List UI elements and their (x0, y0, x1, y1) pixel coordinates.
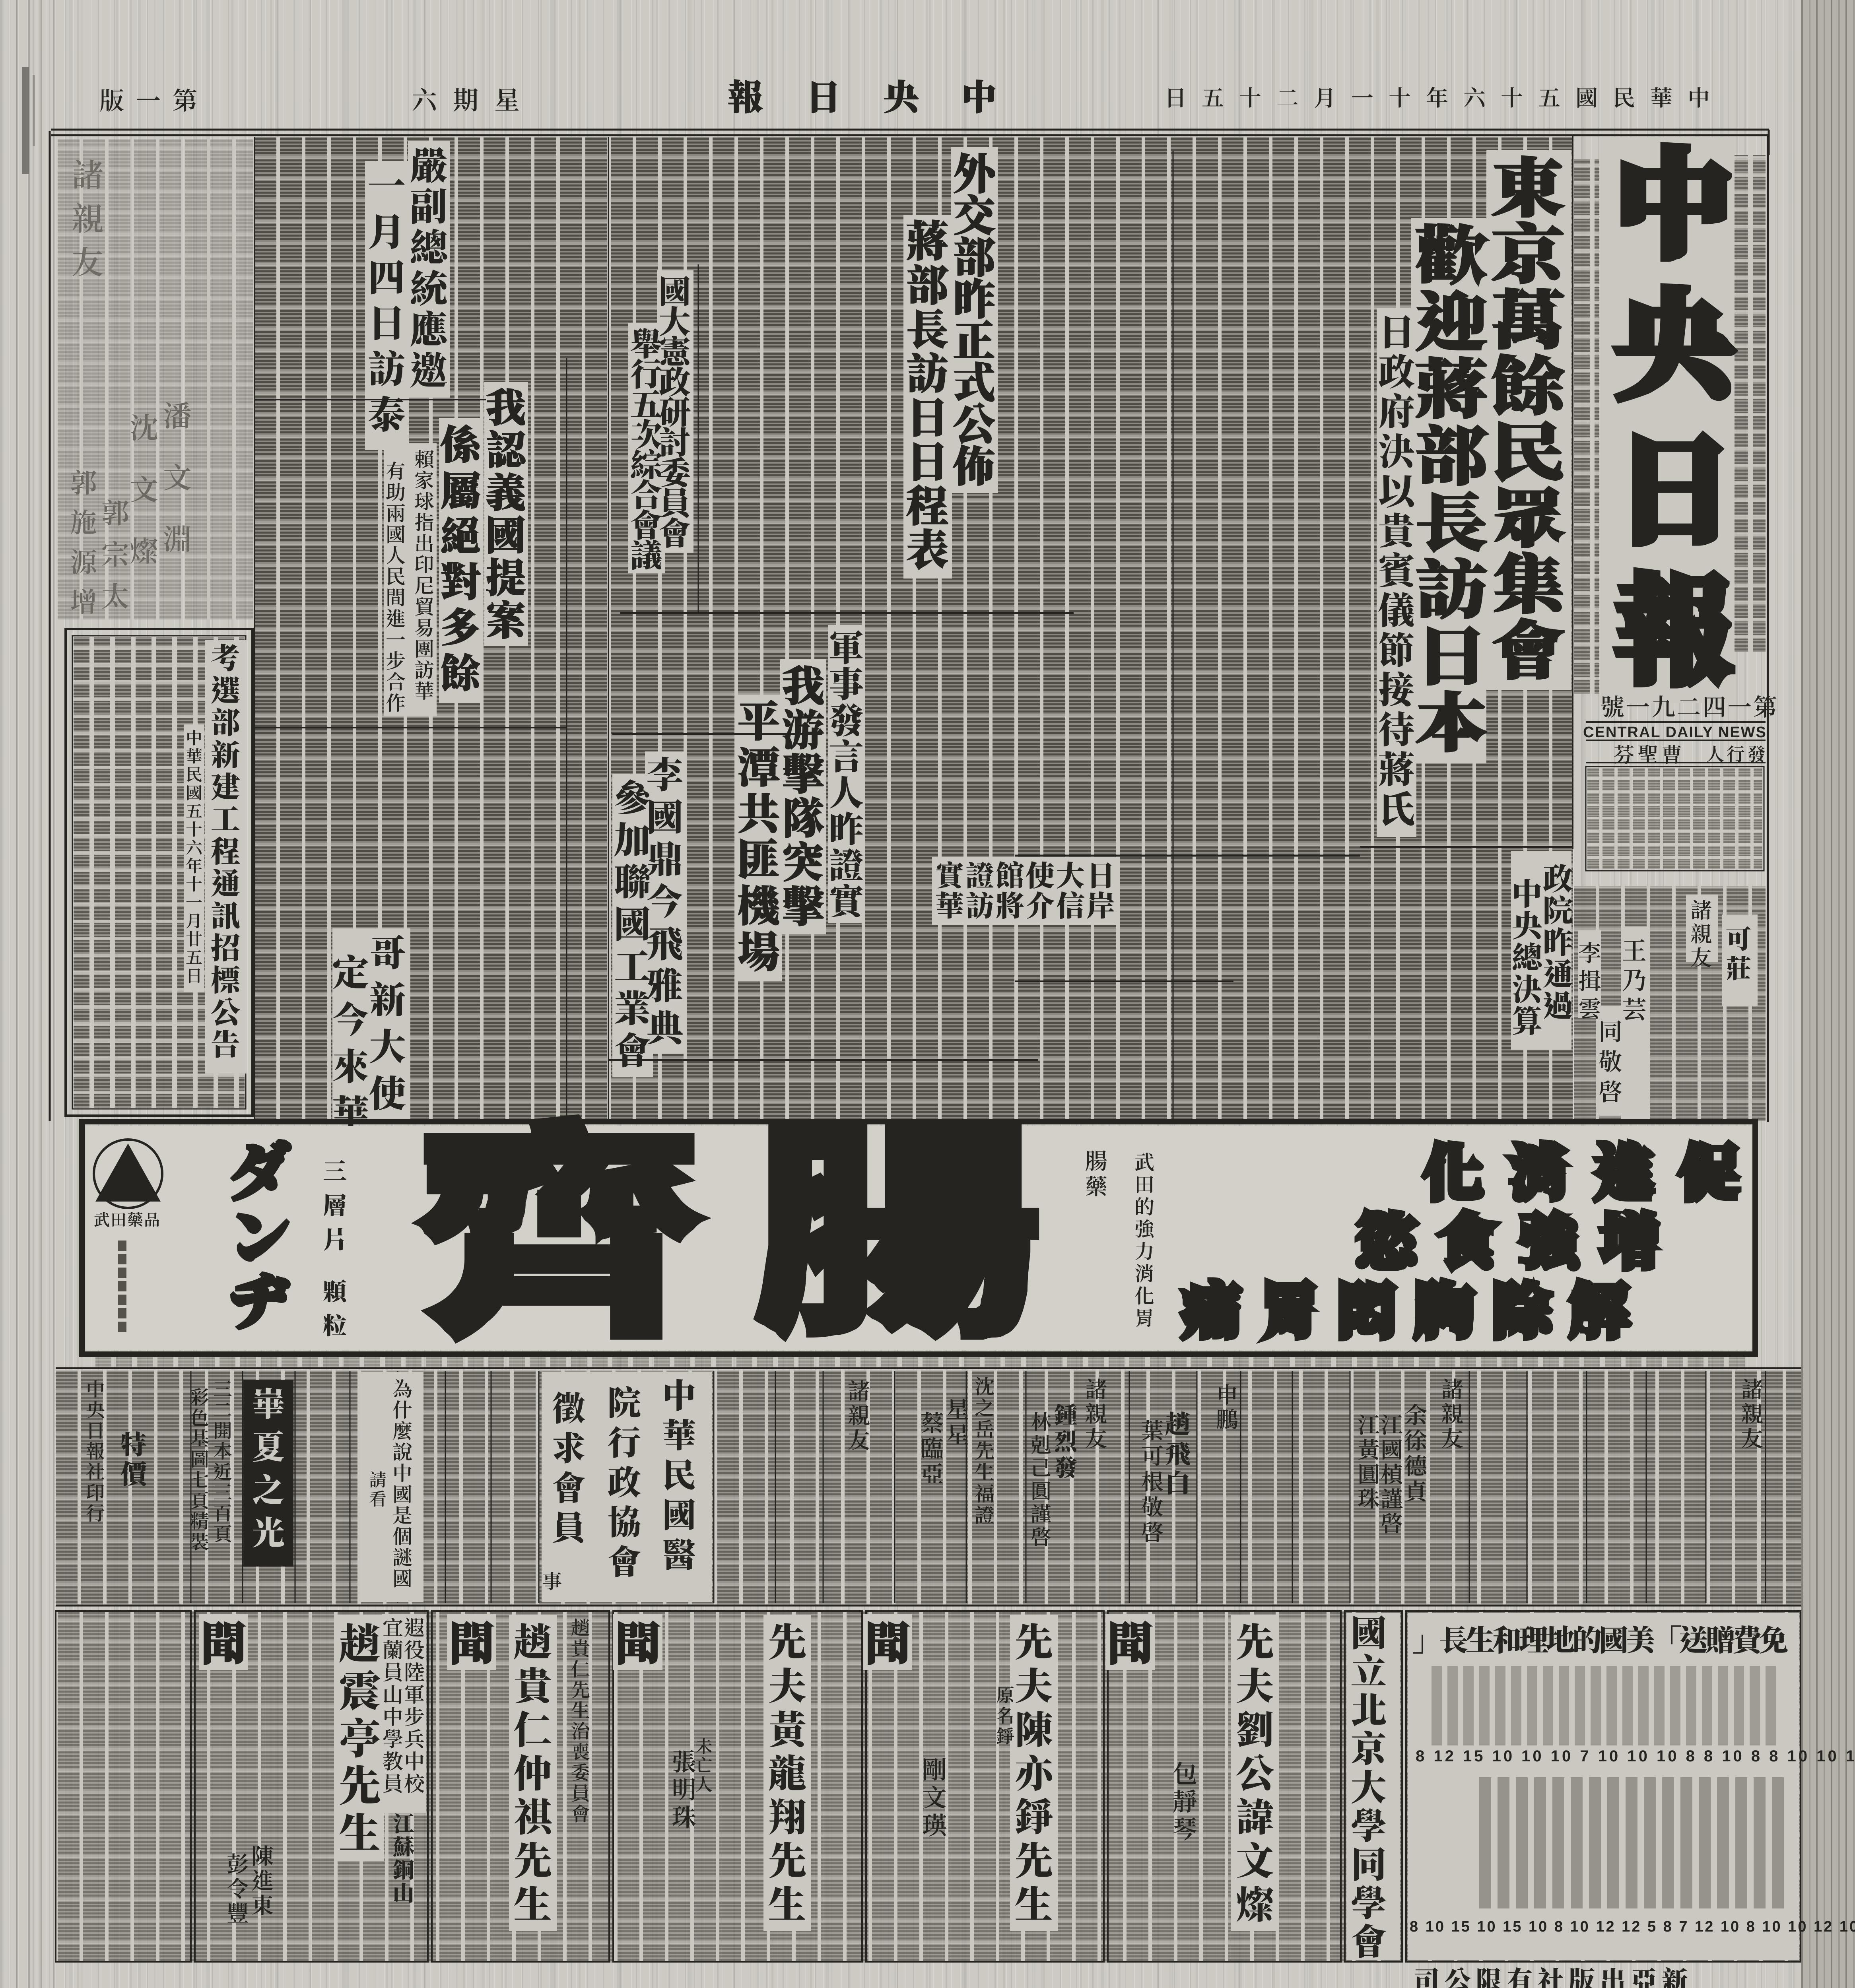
svg-text:CENTRAL DAILY NEWS: CENTRAL DAILY NEWS (1583, 724, 1767, 741)
svg-text:8 10 15 10 15 10 8 10 12 12 5: 8 10 15 10 15 10 8 10 12 12 5 8 7 12 10 … (1410, 1918, 1855, 1935)
svg-text:8 12 15 10 10 10 7 10 10 10 8: 8 12 15 10 10 10 7 10 10 10 8 8 10 8 8 1… (1416, 1747, 1855, 1765)
